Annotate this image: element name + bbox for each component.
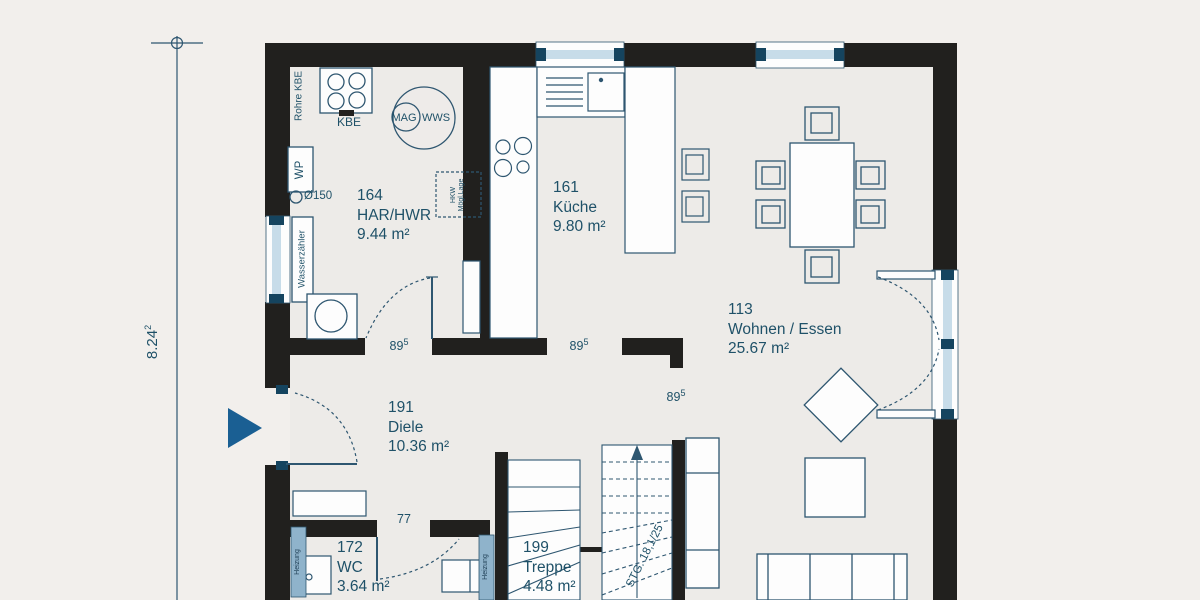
wall-segment [933,417,957,600]
wall-segment [463,67,490,262]
kitchen-island [625,67,675,253]
hkw-label: HKW Mögl.Lage [450,179,466,212]
room-area: 4.48 m² [523,577,576,597]
wws-label: WWS [422,112,450,124]
window-dining [756,42,844,68]
room-label-wohnen-essen: 113 Wohnen / Essen 25.67 m² [728,300,841,359]
kbe-unit [320,68,372,116]
floor-plan: 164 HAR/HWR 9.44 m² 161 Küche 9.80 m² 11… [0,0,1200,600]
dimension-line [151,36,203,600]
washing-machine [307,294,357,339]
kitchen-counter [490,67,537,338]
diameter-label: Ø150 [304,190,332,202]
wall-segment [672,440,685,600]
wall-segment [267,338,365,355]
wc-toilet [442,560,480,592]
window-kitchen [536,42,624,68]
sofa-main [757,554,907,600]
rohre-kbe-label: Rohre KBE [294,71,305,121]
room-area: 10.36 m² [388,437,449,457]
sofa-chaise [686,438,719,588]
wall-segment [430,520,490,537]
wall-segment [495,452,508,600]
room-area: 9.44 m² [357,225,431,245]
sink-unit [537,67,625,117]
dining-table [790,143,854,247]
wall-segment [265,43,290,217]
room-label-diele: 191 Diele 10.36 m² [388,398,449,457]
wall-segment [933,63,957,273]
room-label-kueche: 161 Küche 9.80 m² [553,178,606,237]
window-left [266,216,290,303]
opening-width-label: 895 [570,337,589,353]
wasserzaehler-label: Wasserzähler [297,230,308,288]
room-label-treppe: 199 Treppe 4.48 m² [523,538,576,597]
wall-segment [265,465,290,600]
wp-label: WP [294,161,306,180]
wall-segment [432,338,547,355]
room-number: 191 [388,398,449,418]
opening-width-label: 895 [667,388,686,404]
room-area: 3.64 m² [337,577,390,597]
coffee-table [805,458,865,517]
wall-segment [480,262,490,338]
room-name: Wohnen / Essen [728,320,841,340]
door-width-label: 77 [397,512,411,526]
kitchen-door-leaf [463,261,480,333]
stair-divider-wall [580,547,602,552]
radiator-left-label: Heizung [294,549,302,575]
room-number: 161 [553,178,606,198]
wall-segment [670,350,683,368]
room-number: 113 [728,300,841,320]
mag-label: MAG [391,112,416,124]
room-area: 25.67 m² [728,339,841,359]
room-name: Küche [553,198,606,218]
radiator-right-label: Heizung [482,554,490,580]
opening-width-label: 895 [390,337,409,353]
wall-segment [265,43,537,67]
french-door-window [932,270,958,419]
entrance-arrow-icon [228,408,262,448]
floor-plan-drawing [0,0,1200,600]
room-name: HAR/HWR [357,206,431,226]
room-number: 172 [337,538,390,558]
hkw-line1: HKW [450,179,458,212]
room-name: Treppe [523,558,576,578]
wall-segment [623,43,757,67]
room-number: 199 [523,538,576,558]
room-label-har-hwr: 164 HAR/HWR 9.44 m² [357,186,431,245]
overall-dimension-label: 8.242 [143,325,161,359]
room-name: Diele [388,418,449,438]
room-label-wc: 172 WC 3.64 m² [337,538,390,597]
room-name: WC [337,558,390,578]
sideboard [293,491,366,516]
room-area: 9.80 m² [553,217,606,237]
hkw-line2: Mögl.Lage [458,179,466,212]
kbe-label: KBE [337,115,361,129]
room-number: 164 [357,186,431,206]
